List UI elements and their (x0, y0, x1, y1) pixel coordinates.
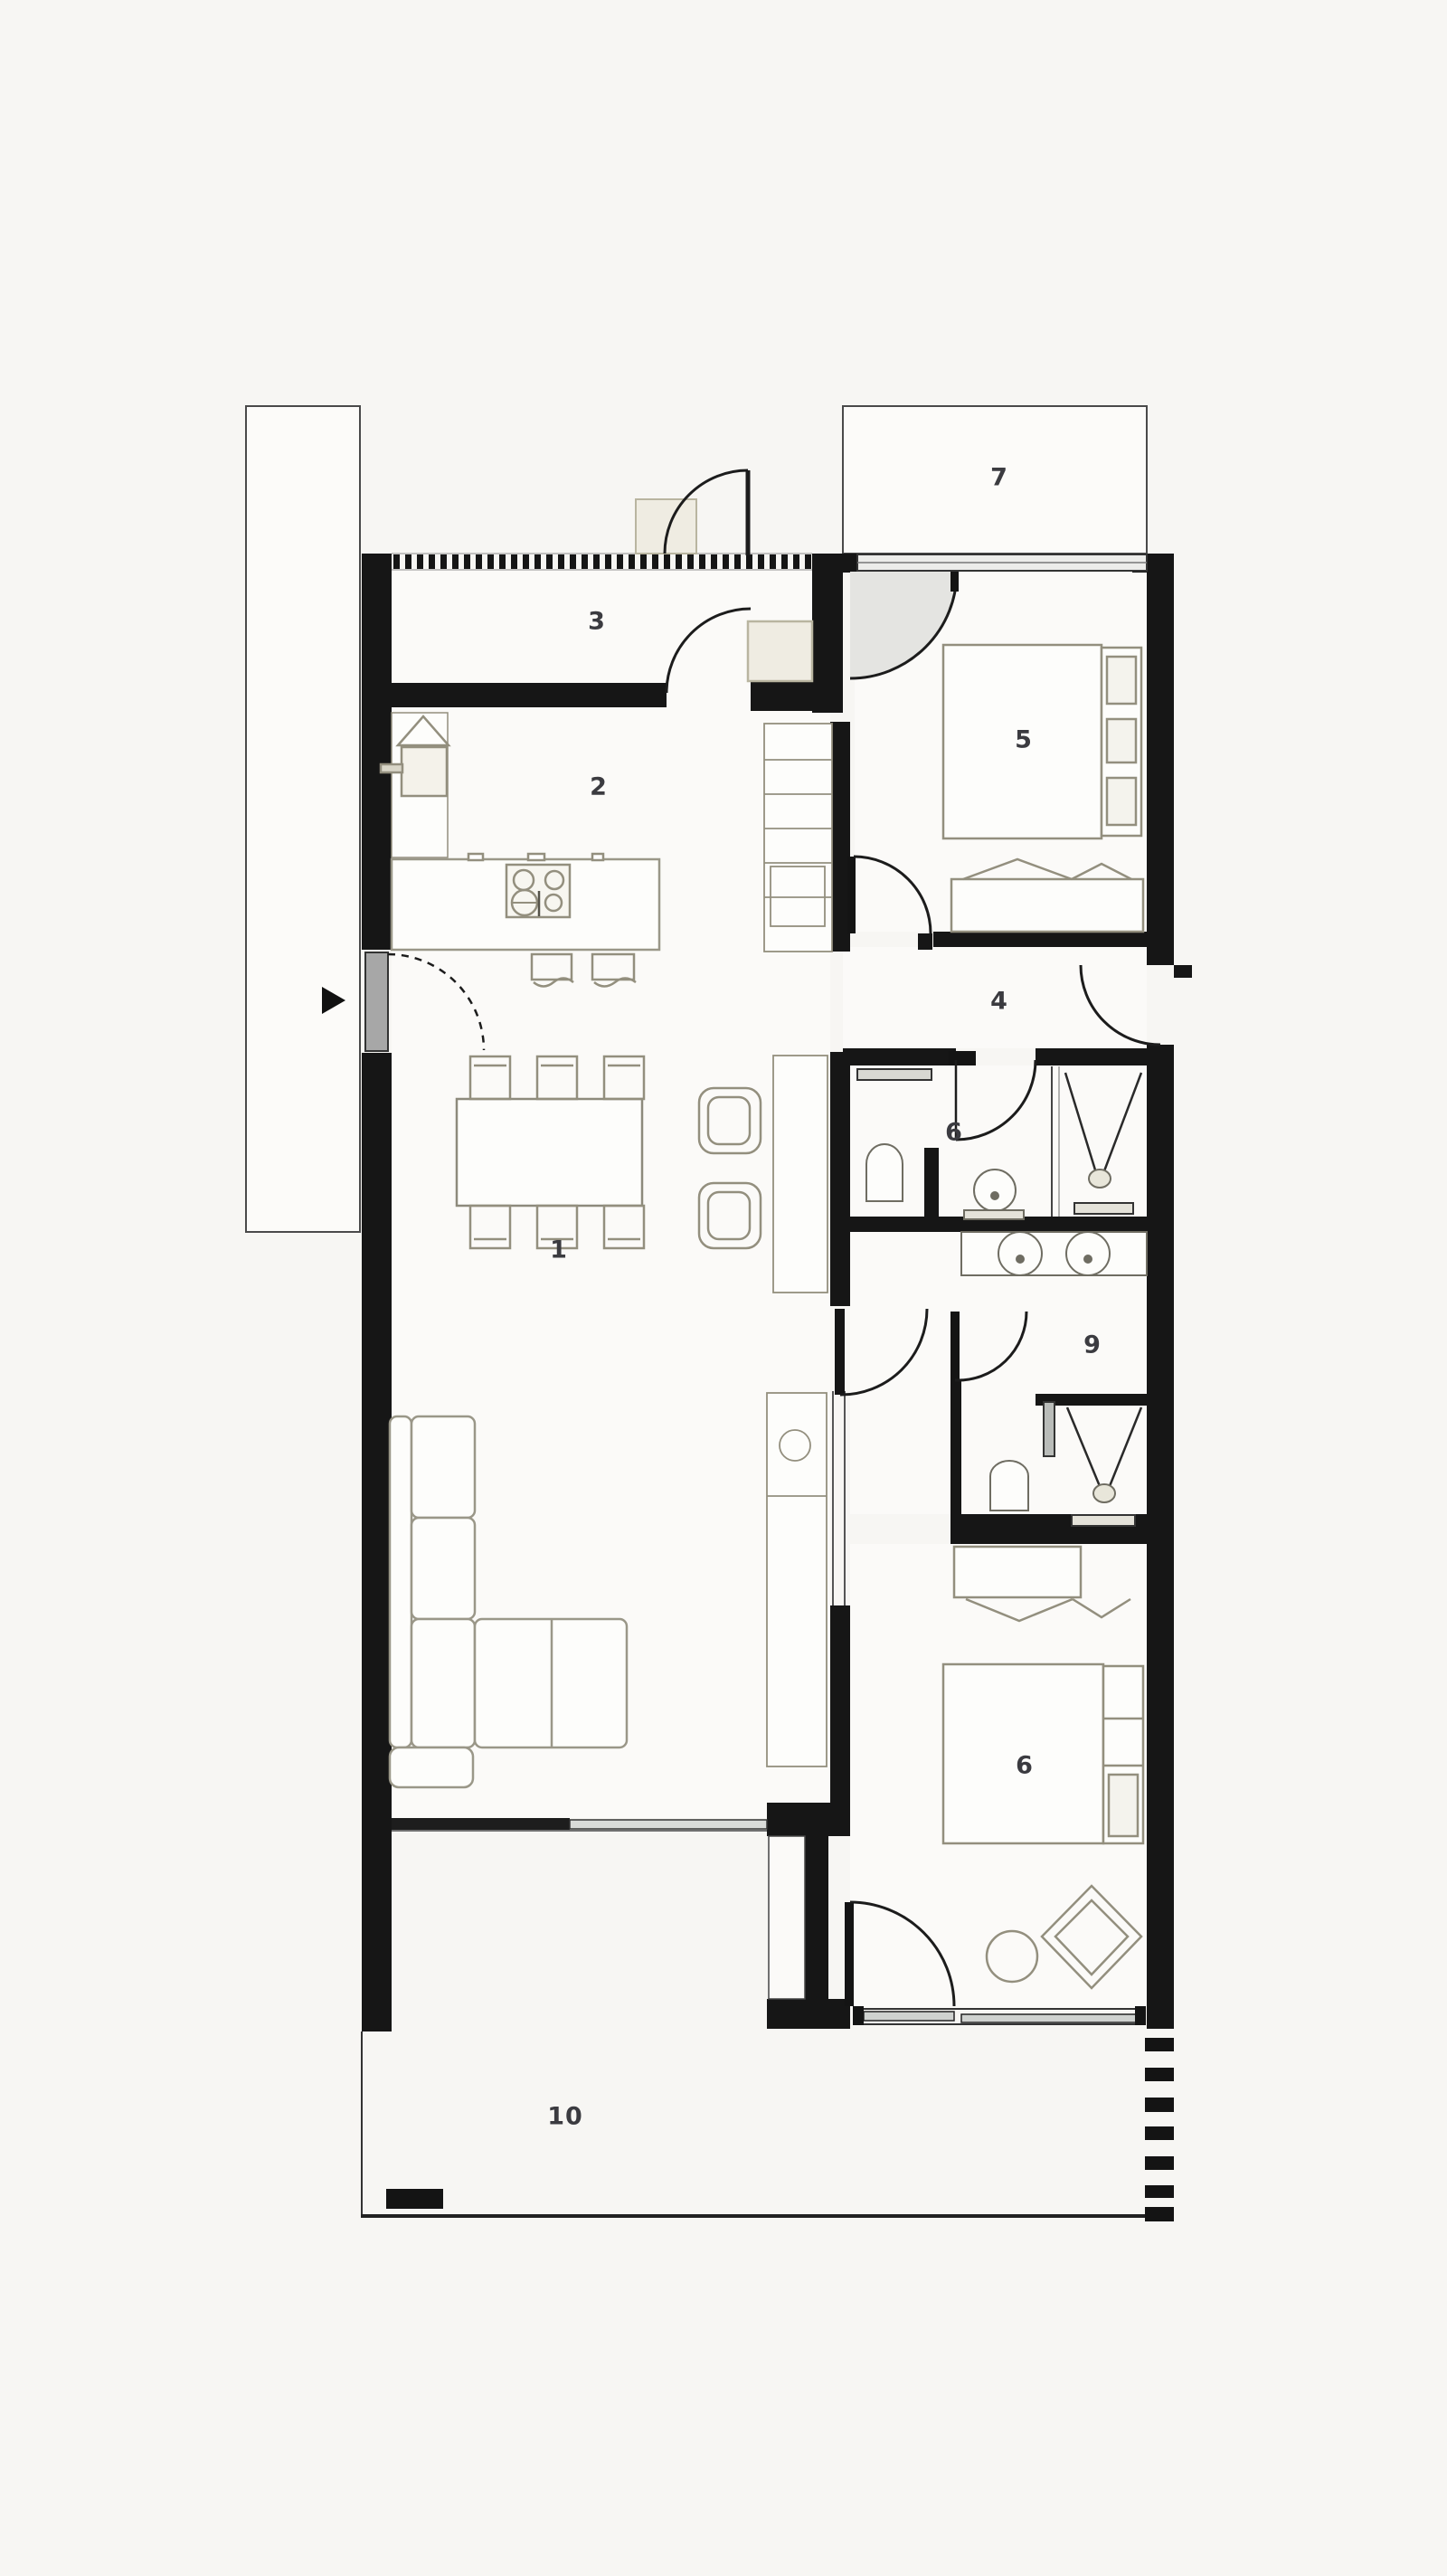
kitchen-island (392, 854, 659, 950)
room-label-bathroom: 6 (945, 1119, 963, 1147)
sideboard-lower (767, 1393, 827, 1766)
room-label-living-room: 1 (550, 1236, 568, 1264)
boundary-hatch-strip (1145, 2038, 1174, 2221)
terrace-corner-post-left (386, 2189, 443, 2209)
room-label-entry-hall: 3 (588, 608, 606, 636)
room-label-hallway: 4 (990, 988, 1008, 1016)
room-label-kitchen: 2 (590, 773, 608, 801)
living-sliding-door (392, 1818, 767, 1831)
toilet-symbol (866, 1144, 903, 1201)
room-label-ensuite-corridor: 9 (1083, 1331, 1102, 1359)
basin-symbol (974, 1170, 1016, 1211)
bedroom-sliding-door (853, 2006, 1146, 2025)
north-louver-wall (392, 554, 812, 570)
hob-symbol (506, 865, 570, 917)
driveway-outline (246, 406, 360, 1232)
room-label-bedroom-top: 5 (1015, 726, 1033, 754)
floor-plan: 1 2 3 4 5 6 7 6 9 10 (0, 0, 1447, 2576)
hall-wardrobe (764, 724, 832, 952)
double-vanity-symbol (961, 1232, 1147, 1275)
kitchen-wall-counter (381, 713, 449, 857)
north-gate-door (636, 470, 748, 555)
bed5-symbol (943, 645, 1143, 932)
ensuite-toilet-symbol (990, 1461, 1028, 1511)
floor-plan-drawing (0, 0, 1447, 2576)
room-label-terrace-bottom: 10 (547, 2103, 583, 2131)
wall-niche (769, 1836, 805, 1999)
room-label-bedroom-bottom: 6 (1016, 1752, 1034, 1780)
spine-glass-partition (833, 1391, 845, 1605)
ensuite-glass-door (1044, 1402, 1055, 1456)
hall3-cabinet (748, 621, 812, 681)
room-label-terrace-top: 7 (990, 464, 1008, 492)
sideboard-upper (773, 1056, 828, 1293)
